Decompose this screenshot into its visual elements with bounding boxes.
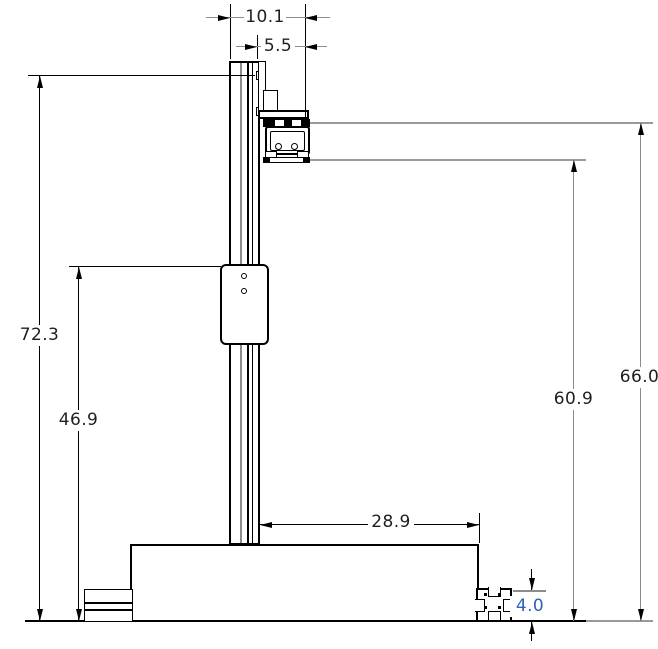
dimension-line-72-3 xyxy=(39,75,40,621)
arrowhead xyxy=(245,44,257,50)
extrusion-web xyxy=(484,593,487,596)
extension-line-4-0-top xyxy=(513,590,546,592)
arrowhead xyxy=(76,609,82,621)
base-plate xyxy=(130,544,479,622)
dimension-label-foot-height[interactable]: 4.0 xyxy=(510,596,550,617)
dimension-label-mount-height[interactable]: 46.9 xyxy=(56,410,101,431)
dimension-label-top-width[interactable]: 10.1 xyxy=(244,7,286,28)
arrowhead xyxy=(218,15,230,21)
arrowhead xyxy=(76,267,82,279)
left-foot-stack-line xyxy=(85,609,132,611)
extension-line-72-3 xyxy=(28,75,255,76)
arm-top-projection-line xyxy=(310,122,653,124)
plate-hole xyxy=(241,288,247,294)
arrowhead xyxy=(529,578,535,590)
plate-hole xyxy=(241,273,247,279)
arrowhead xyxy=(37,609,43,621)
left-foot-stack-line xyxy=(85,602,132,604)
arrowhead xyxy=(305,15,317,21)
arrowhead xyxy=(529,622,535,634)
carriage-bottom-cap xyxy=(303,157,310,163)
dimension-label-overall-height[interactable]: 72.3 xyxy=(17,325,62,346)
extension-line-5-5-left xyxy=(257,35,258,59)
arm-bottom-projection-line xyxy=(310,159,586,161)
arrowhead xyxy=(260,522,272,528)
extension-line-46-9 xyxy=(69,266,221,267)
arrowhead xyxy=(467,522,479,528)
dimension-label-top-offset[interactable]: 5.5 xyxy=(261,36,295,57)
extrusion-web xyxy=(498,606,501,609)
extrusion-slot-bottom xyxy=(488,611,501,620)
extrusion-web xyxy=(484,606,487,609)
extension-line-28-9-right xyxy=(479,513,480,543)
bracket-flange xyxy=(258,110,309,119)
arrowhead xyxy=(37,76,43,88)
carriage-bottom-cap xyxy=(263,157,270,163)
dimension-label-arm-lower-height[interactable]: 60.9 xyxy=(551,389,596,410)
carriage-screw-hole xyxy=(275,143,282,150)
arrowhead xyxy=(638,609,644,621)
arrowhead xyxy=(305,44,317,50)
arrowhead xyxy=(571,609,577,621)
arrowhead xyxy=(638,123,644,135)
extrusion-web xyxy=(498,593,501,596)
cad-drawing-view: 10.1 5.5 72.3 46.9 28.9 60.9 66.0 4.0 xyxy=(0,0,658,649)
arrowhead xyxy=(571,160,577,172)
dimension-line-46-9 xyxy=(78,267,79,621)
carriage-screw-hole xyxy=(291,143,298,150)
left-foot-stack xyxy=(84,589,133,622)
dimension-label-base-width[interactable]: 28.9 xyxy=(368,512,414,533)
extension-line-10-1-right xyxy=(305,4,306,120)
extension-line-10-1-left xyxy=(230,4,231,59)
dimension-label-arm-upper-height[interactable]: 66.0 xyxy=(617,367,658,388)
